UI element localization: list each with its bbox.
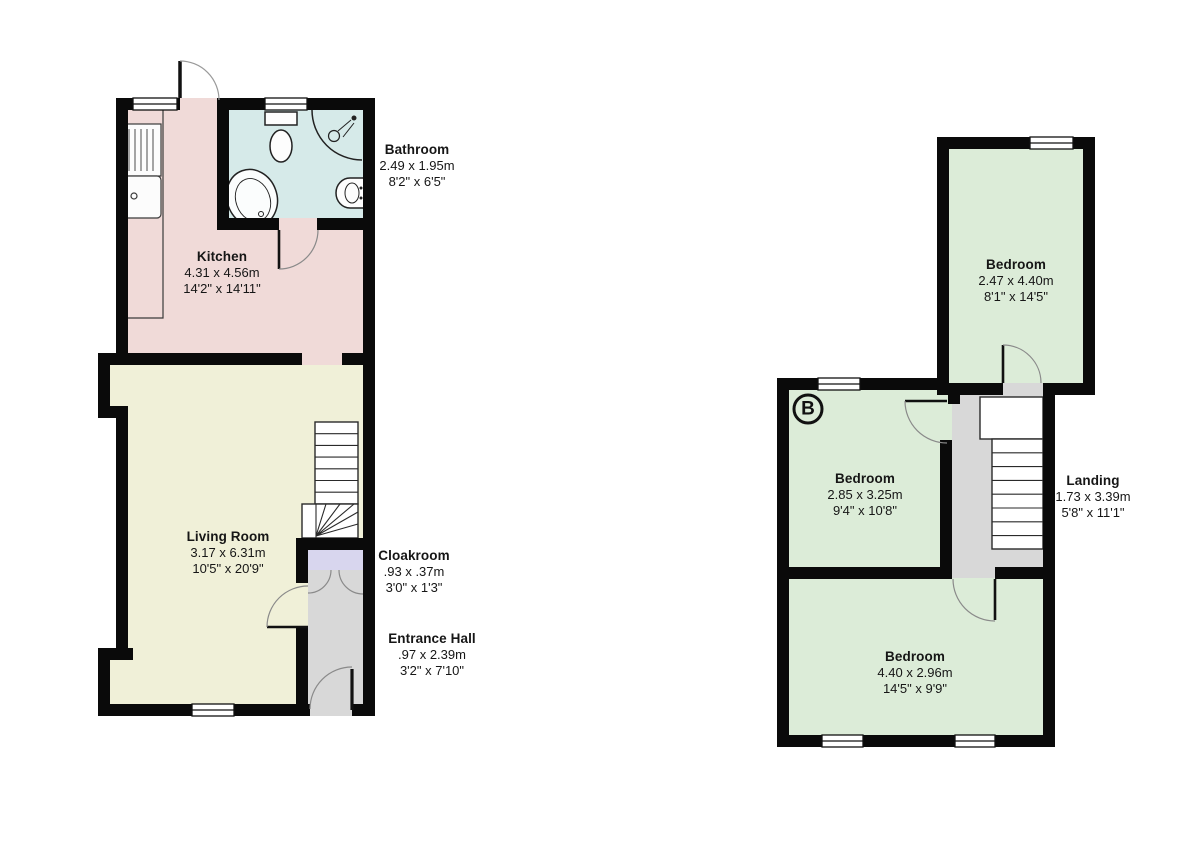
room-label-bedroom-2: Bedroom 2.85 x 3.25m 9'4" x 10'8" bbox=[827, 471, 902, 519]
room-label-kitchen: Kitchen 4.31 x 4.56m 14'2" x 14'11" bbox=[183, 249, 261, 297]
basin-tap bbox=[360, 197, 363, 200]
room-name: Entrance Hall bbox=[388, 631, 476, 647]
room-dimensions-imperial: 14'2" x 14'11" bbox=[183, 281, 261, 297]
room-dimensions-imperial: 5'8" x 11'1" bbox=[1055, 505, 1130, 521]
room-label-bedroom-1: Bedroom 2.47 x 4.40m 8'1" x 14'5" bbox=[978, 257, 1053, 305]
shower-head bbox=[352, 116, 357, 121]
room-dimensions-metric: 2.49 x 1.95m bbox=[379, 158, 454, 174]
window-icon bbox=[822, 735, 863, 747]
room-dimensions-metric: 4.31 x 4.56m bbox=[183, 265, 261, 281]
stairs-landing-platform bbox=[980, 397, 1043, 439]
doorway-fill bbox=[947, 567, 995, 579]
room-label-landing: Landing 1.73 x 3.39m 5'8" x 11'1" bbox=[1055, 473, 1130, 521]
room-dimensions-imperial: 14'5" x 9'9" bbox=[877, 681, 952, 697]
floorplan-drawing bbox=[0, 0, 1200, 848]
room-label-entrance-hall: Entrance Hall .97 x 2.39m 3'2" x 7'10" bbox=[388, 631, 476, 679]
room-dimensions-imperial: 10'5" x 20'9" bbox=[187, 561, 270, 577]
room-dimensions-metric: 1.73 x 3.39m bbox=[1055, 489, 1130, 505]
room-name: Kitchen bbox=[183, 249, 261, 265]
window-icon bbox=[133, 98, 177, 110]
plan-marker-b: B bbox=[793, 394, 824, 425]
room-label-bedroom-3: Bedroom 4.40 x 2.96m 14'5" x 9'9" bbox=[877, 649, 952, 697]
room-dimensions-imperial: 8'1" x 14'5" bbox=[978, 289, 1053, 305]
room-dimensions-imperial: 9'4" x 10'8" bbox=[827, 503, 902, 519]
room-dimensions-imperial: 3'0" x 1'3" bbox=[378, 580, 449, 596]
room-dimensions-metric: 4.40 x 2.96m bbox=[877, 665, 952, 681]
stairs-winder bbox=[302, 504, 358, 538]
floorplan-canvas: Kitchen 4.31 x 4.56m 14'2" x 14'11" Bath… bbox=[0, 0, 1200, 848]
room-label-bathroom: Bathroom 2.49 x 1.95m 8'2" x 6'5" bbox=[379, 142, 454, 190]
exterior-patch bbox=[98, 418, 116, 648]
room-name: Landing bbox=[1055, 473, 1130, 489]
room-dimensions-metric: 3.17 x 6.31m bbox=[187, 545, 270, 561]
room-dimensions-metric: 2.85 x 3.25m bbox=[827, 487, 902, 503]
room-dimensions-imperial: 8'2" x 6'5" bbox=[379, 174, 454, 190]
window-icon bbox=[265, 98, 307, 110]
window-icon bbox=[955, 735, 995, 747]
cloakroom-floor bbox=[308, 550, 363, 570]
room-dimensions-metric: 2.47 x 4.40m bbox=[978, 273, 1053, 289]
door-arc bbox=[180, 61, 219, 100]
room-dimensions-imperial: 3'2" x 7'10" bbox=[388, 663, 476, 679]
basin-tap bbox=[360, 187, 363, 190]
ground-floor-plan bbox=[98, 61, 375, 716]
window-icon bbox=[192, 704, 234, 716]
toilet-bowl bbox=[270, 130, 292, 162]
window-icon bbox=[818, 378, 860, 390]
room-name: Bedroom bbox=[877, 649, 952, 665]
door-swing-icon bbox=[180, 61, 219, 100]
room-label-living-room: Living Room 3.17 x 6.31m 10'5" x 20'9" bbox=[187, 529, 270, 577]
room-dimensions-metric: .93 x .37m bbox=[378, 564, 449, 580]
room-name: Bedroom bbox=[978, 257, 1053, 273]
sink-bowl bbox=[123, 176, 161, 218]
room-name: Bedroom bbox=[827, 471, 902, 487]
room-label-cloakroom: Cloakroom .93 x .37m 3'0" x 1'3" bbox=[378, 548, 449, 596]
room-name: Living Room bbox=[187, 529, 270, 545]
room-name: Bathroom bbox=[379, 142, 454, 158]
toilet-cistern bbox=[265, 112, 297, 125]
wash-basin-icon bbox=[336, 178, 363, 208]
room-dimensions-metric: .97 x 2.39m bbox=[388, 647, 476, 663]
room-name: Cloakroom bbox=[378, 548, 449, 564]
window-icon bbox=[1030, 137, 1073, 149]
